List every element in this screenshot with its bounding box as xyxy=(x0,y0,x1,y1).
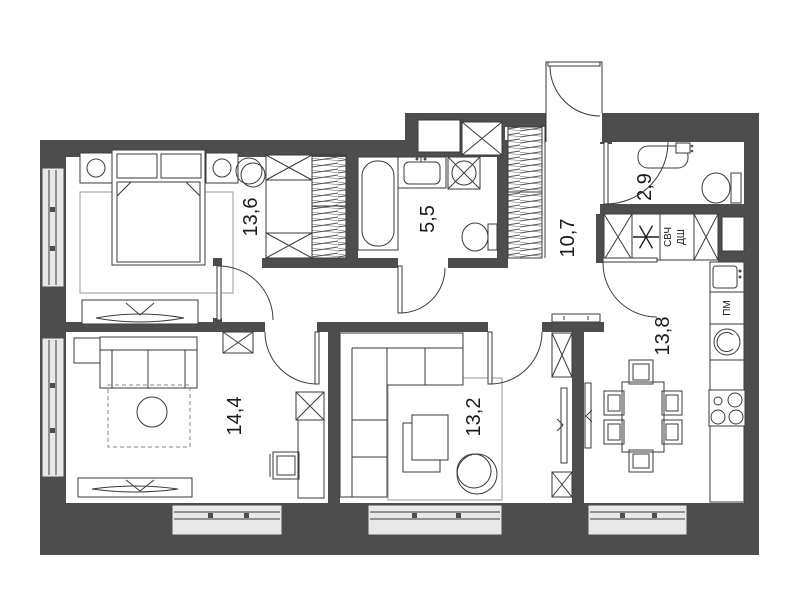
window-left-room xyxy=(42,338,64,477)
dresser xyxy=(82,300,198,324)
wc-sink xyxy=(638,143,693,168)
door-arc xyxy=(400,268,445,313)
kitchen-area-label: 13,8 xyxy=(652,317,674,356)
round-table xyxy=(137,397,167,427)
wall-niche xyxy=(418,120,460,152)
hallway-area-label: 10,7 xyxy=(557,219,579,258)
hallway xyxy=(508,127,600,322)
entry-vestibule xyxy=(546,62,602,142)
dining-chair xyxy=(604,391,624,415)
dining-chair xyxy=(629,450,653,472)
floor-plan-drawing: СВЧ ДШ ПМ xyxy=(0,0,800,600)
vent-shaft-kitchen xyxy=(722,217,744,251)
dining-chair xyxy=(604,420,624,444)
bedroom-area-label: 13,6 xyxy=(240,198,262,237)
bathroom xyxy=(358,157,497,313)
coffee-table xyxy=(403,415,448,472)
window-bottom-living xyxy=(368,505,502,535)
dining-chair xyxy=(629,360,653,384)
room xyxy=(74,332,324,498)
vent-shaft-top xyxy=(462,122,502,155)
blanket xyxy=(117,182,200,262)
microwave-label: СВЧ xyxy=(663,227,674,247)
washing-machine xyxy=(448,157,480,189)
living-room xyxy=(340,332,542,500)
sofa-room xyxy=(100,337,197,388)
door-arc xyxy=(603,263,657,317)
floor-plan-page: СВЧ ДШ ПМ xyxy=(0,0,800,600)
room-shaft xyxy=(223,332,253,353)
room-rug xyxy=(108,385,190,447)
door-arc xyxy=(490,332,542,384)
bathroom-toilet xyxy=(462,223,497,251)
door-leaf xyxy=(398,266,402,313)
wc-toilet xyxy=(702,173,741,203)
door-leaf xyxy=(604,142,608,204)
oven-label: ДШ xyxy=(676,229,687,245)
dining-chair xyxy=(662,391,682,415)
door-leaf xyxy=(217,266,221,320)
dining-table-set xyxy=(604,360,682,472)
desk-chair xyxy=(270,452,299,479)
kitchen-door xyxy=(603,258,657,317)
bathroom-area-label: 5,5 xyxy=(417,205,439,233)
wc-area-label: 2,9 xyxy=(634,173,656,201)
pillow xyxy=(161,154,201,178)
fridge xyxy=(632,214,660,260)
bathroom-door xyxy=(398,266,445,313)
microwave-oven-cabinet: СВЧ ДШ xyxy=(660,214,694,260)
tv-stand xyxy=(78,478,192,497)
nightstand-right xyxy=(206,153,238,183)
pillow xyxy=(117,154,157,178)
bedroom-wardrobe xyxy=(266,155,346,258)
kitchen-sink xyxy=(713,266,742,288)
door-arc xyxy=(265,332,317,384)
hall-wardrobe xyxy=(508,127,545,258)
wc xyxy=(604,142,741,204)
desk xyxy=(296,392,324,498)
door-leaf xyxy=(488,332,492,384)
dining-chair xyxy=(662,420,682,444)
room-door xyxy=(265,332,319,384)
bathtub xyxy=(358,157,398,250)
nightstand-left xyxy=(80,153,112,183)
living-area-label: 13,2 xyxy=(463,398,485,437)
dishwasher-label: ПМ xyxy=(722,300,733,316)
bedroom xyxy=(80,150,346,324)
dining-table xyxy=(622,382,664,452)
hob xyxy=(709,390,745,426)
pouf xyxy=(457,454,497,494)
bathroom-sink xyxy=(398,157,446,188)
kitchen-counter: ПМ xyxy=(709,262,745,502)
hall-console xyxy=(552,314,600,322)
kitchen: ПМ xyxy=(603,258,745,502)
window-bottom-room xyxy=(172,505,282,535)
entry-door-leaf xyxy=(548,62,600,66)
bed xyxy=(112,150,205,265)
side-table xyxy=(74,338,100,363)
door-leaf xyxy=(315,332,319,384)
room-area-label: 14,4 xyxy=(224,397,246,436)
living-door xyxy=(488,332,542,384)
ceiling-lamp-icon xyxy=(236,158,265,187)
window-bottom-kitchen xyxy=(588,505,687,535)
window-left-bedroom xyxy=(42,168,64,287)
door-leaf xyxy=(603,258,657,262)
